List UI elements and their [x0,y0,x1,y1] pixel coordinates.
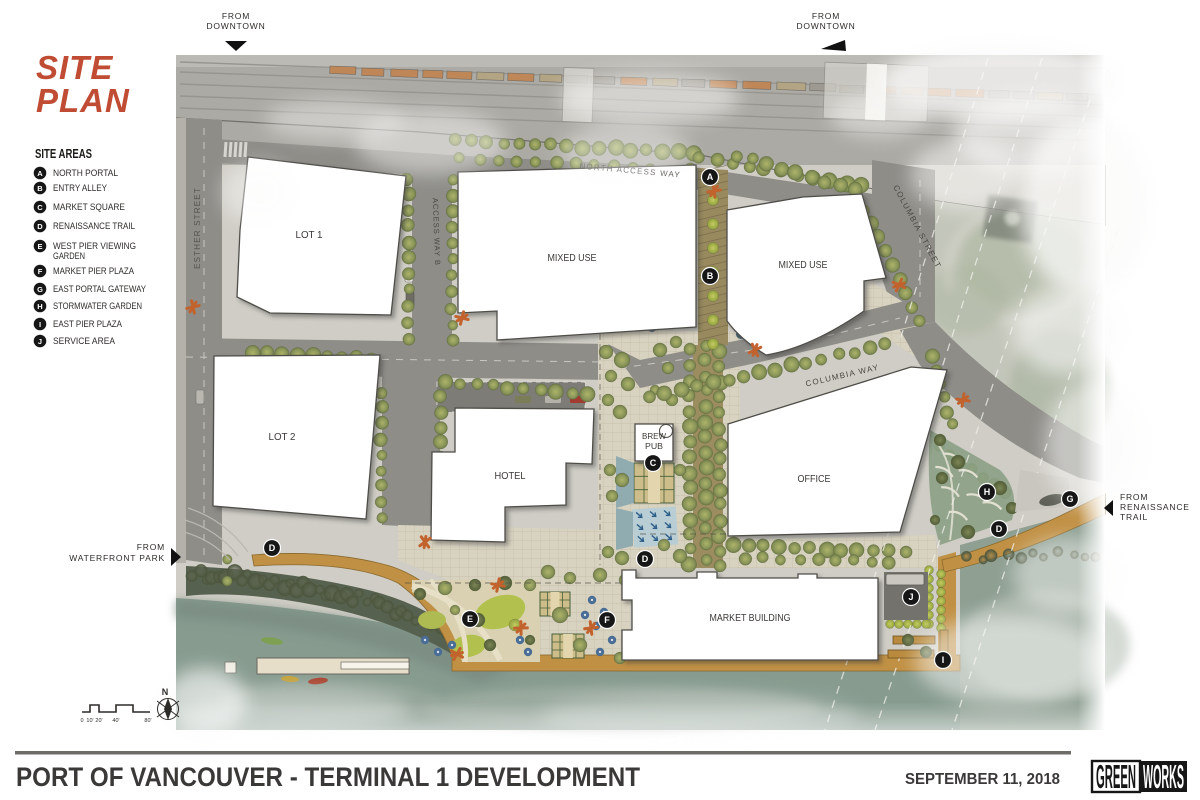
svg-text:D: D [269,543,276,553]
svg-text:FROM: FROM [137,542,165,552]
svg-text:DOWNTOWN: DOWNTOWN [206,21,265,31]
svg-text:FROM: FROM [222,11,250,21]
svg-text:STORMWATER GARDEN: STORMWATER GARDEN [53,301,142,312]
svg-text:LOT 2: LOT 2 [269,432,296,443]
svg-text:E: E [37,242,42,251]
svg-text:G: G [1066,494,1073,504]
svg-text:A: A [707,172,714,182]
svg-text:MARKET SQUARE: MARKET SQUARE [53,202,125,213]
svg-text:SITE: SITE [36,49,113,86]
svg-text:LOT 1: LOT 1 [296,230,323,241]
svg-text:J: J [908,592,913,602]
svg-text:J: J [38,337,42,346]
svg-text:F: F [38,267,43,276]
svg-text:PLAN: PLAN [36,82,130,119]
svg-text:EAST PORTAL GATEWAY: EAST PORTAL GATEWAY [53,284,147,295]
svg-text:DOWNTOWN: DOWNTOWN [796,21,855,31]
svg-text:RENAISSANCE TRAIL: RENAISSANCE TRAIL [53,221,135,232]
svg-text:0: 0 [80,718,83,724]
svg-text:D: D [37,222,43,231]
svg-text:ENTRY ALLEY: ENTRY ALLEY [53,183,108,194]
svg-text:I: I [942,655,945,665]
svg-text:80': 80' [144,718,151,724]
svg-text:PORT OF VANCOUVER - TERMINAL 1: PORT OF VANCOUVER - TERMINAL 1 DEVELOPME… [16,762,640,792]
svg-text:E: E [467,614,473,624]
svg-text:MARKET PIER PLAZA: MARKET PIER PLAZA [53,266,135,277]
svg-text:WORKS: WORKS [1143,758,1184,795]
svg-text:I: I [39,320,41,329]
svg-text:10': 10' [86,718,93,724]
svg-text:OFFICE: OFFICE [798,473,831,485]
svg-text:MIXED USE: MIXED USE [548,253,597,264]
svg-text:D: D [642,554,649,564]
svg-text:SERVICE AREA: SERVICE AREA [53,336,116,347]
svg-text:D: D [996,524,1003,534]
svg-text:A: A [37,169,43,178]
svg-text:H: H [37,302,42,311]
svg-text:GARDEN: GARDEN [53,251,85,262]
svg-text:WATERFRONT PARK: WATERFRONT PARK [69,553,165,563]
svg-text:RENAISSANCE: RENAISSANCE [1120,502,1190,512]
svg-text:EAST PIER PLAZA: EAST PIER PLAZA [53,319,123,330]
svg-text:G: G [37,285,43,294]
svg-text:MIXED USE: MIXED USE [779,260,828,271]
svg-text:C: C [650,458,657,468]
svg-text:FROM: FROM [812,11,840,21]
svg-text:ESTHER STREET: ESTHER STREET [193,187,202,269]
svg-text:TRAIL: TRAIL [1120,512,1148,522]
svg-text:F: F [604,615,610,625]
svg-text:MARKET BUILDING: MARKET BUILDING [710,612,791,624]
svg-text:40': 40' [112,718,119,724]
svg-text:PUB: PUB [645,442,663,451]
svg-text:H: H [984,487,991,497]
svg-text:B: B [37,184,43,193]
svg-text:B: B [707,271,714,281]
svg-text:SITE AREAS: SITE AREAS [35,146,92,161]
svg-text:NORTH PORTAL: NORTH PORTAL [53,168,118,179]
svg-text:BREW: BREW [642,432,666,441]
svg-text:C: C [37,203,43,212]
svg-text:SEPTEMBER 11, 2018: SEPTEMBER 11, 2018 [905,771,1060,788]
svg-text:FROM: FROM [1120,492,1148,502]
svg-text:HOTEL: HOTEL [495,471,526,482]
svg-text:N: N [162,687,169,697]
svg-text:20': 20' [95,718,102,724]
svg-text:GREEN: GREEN [1096,758,1136,795]
